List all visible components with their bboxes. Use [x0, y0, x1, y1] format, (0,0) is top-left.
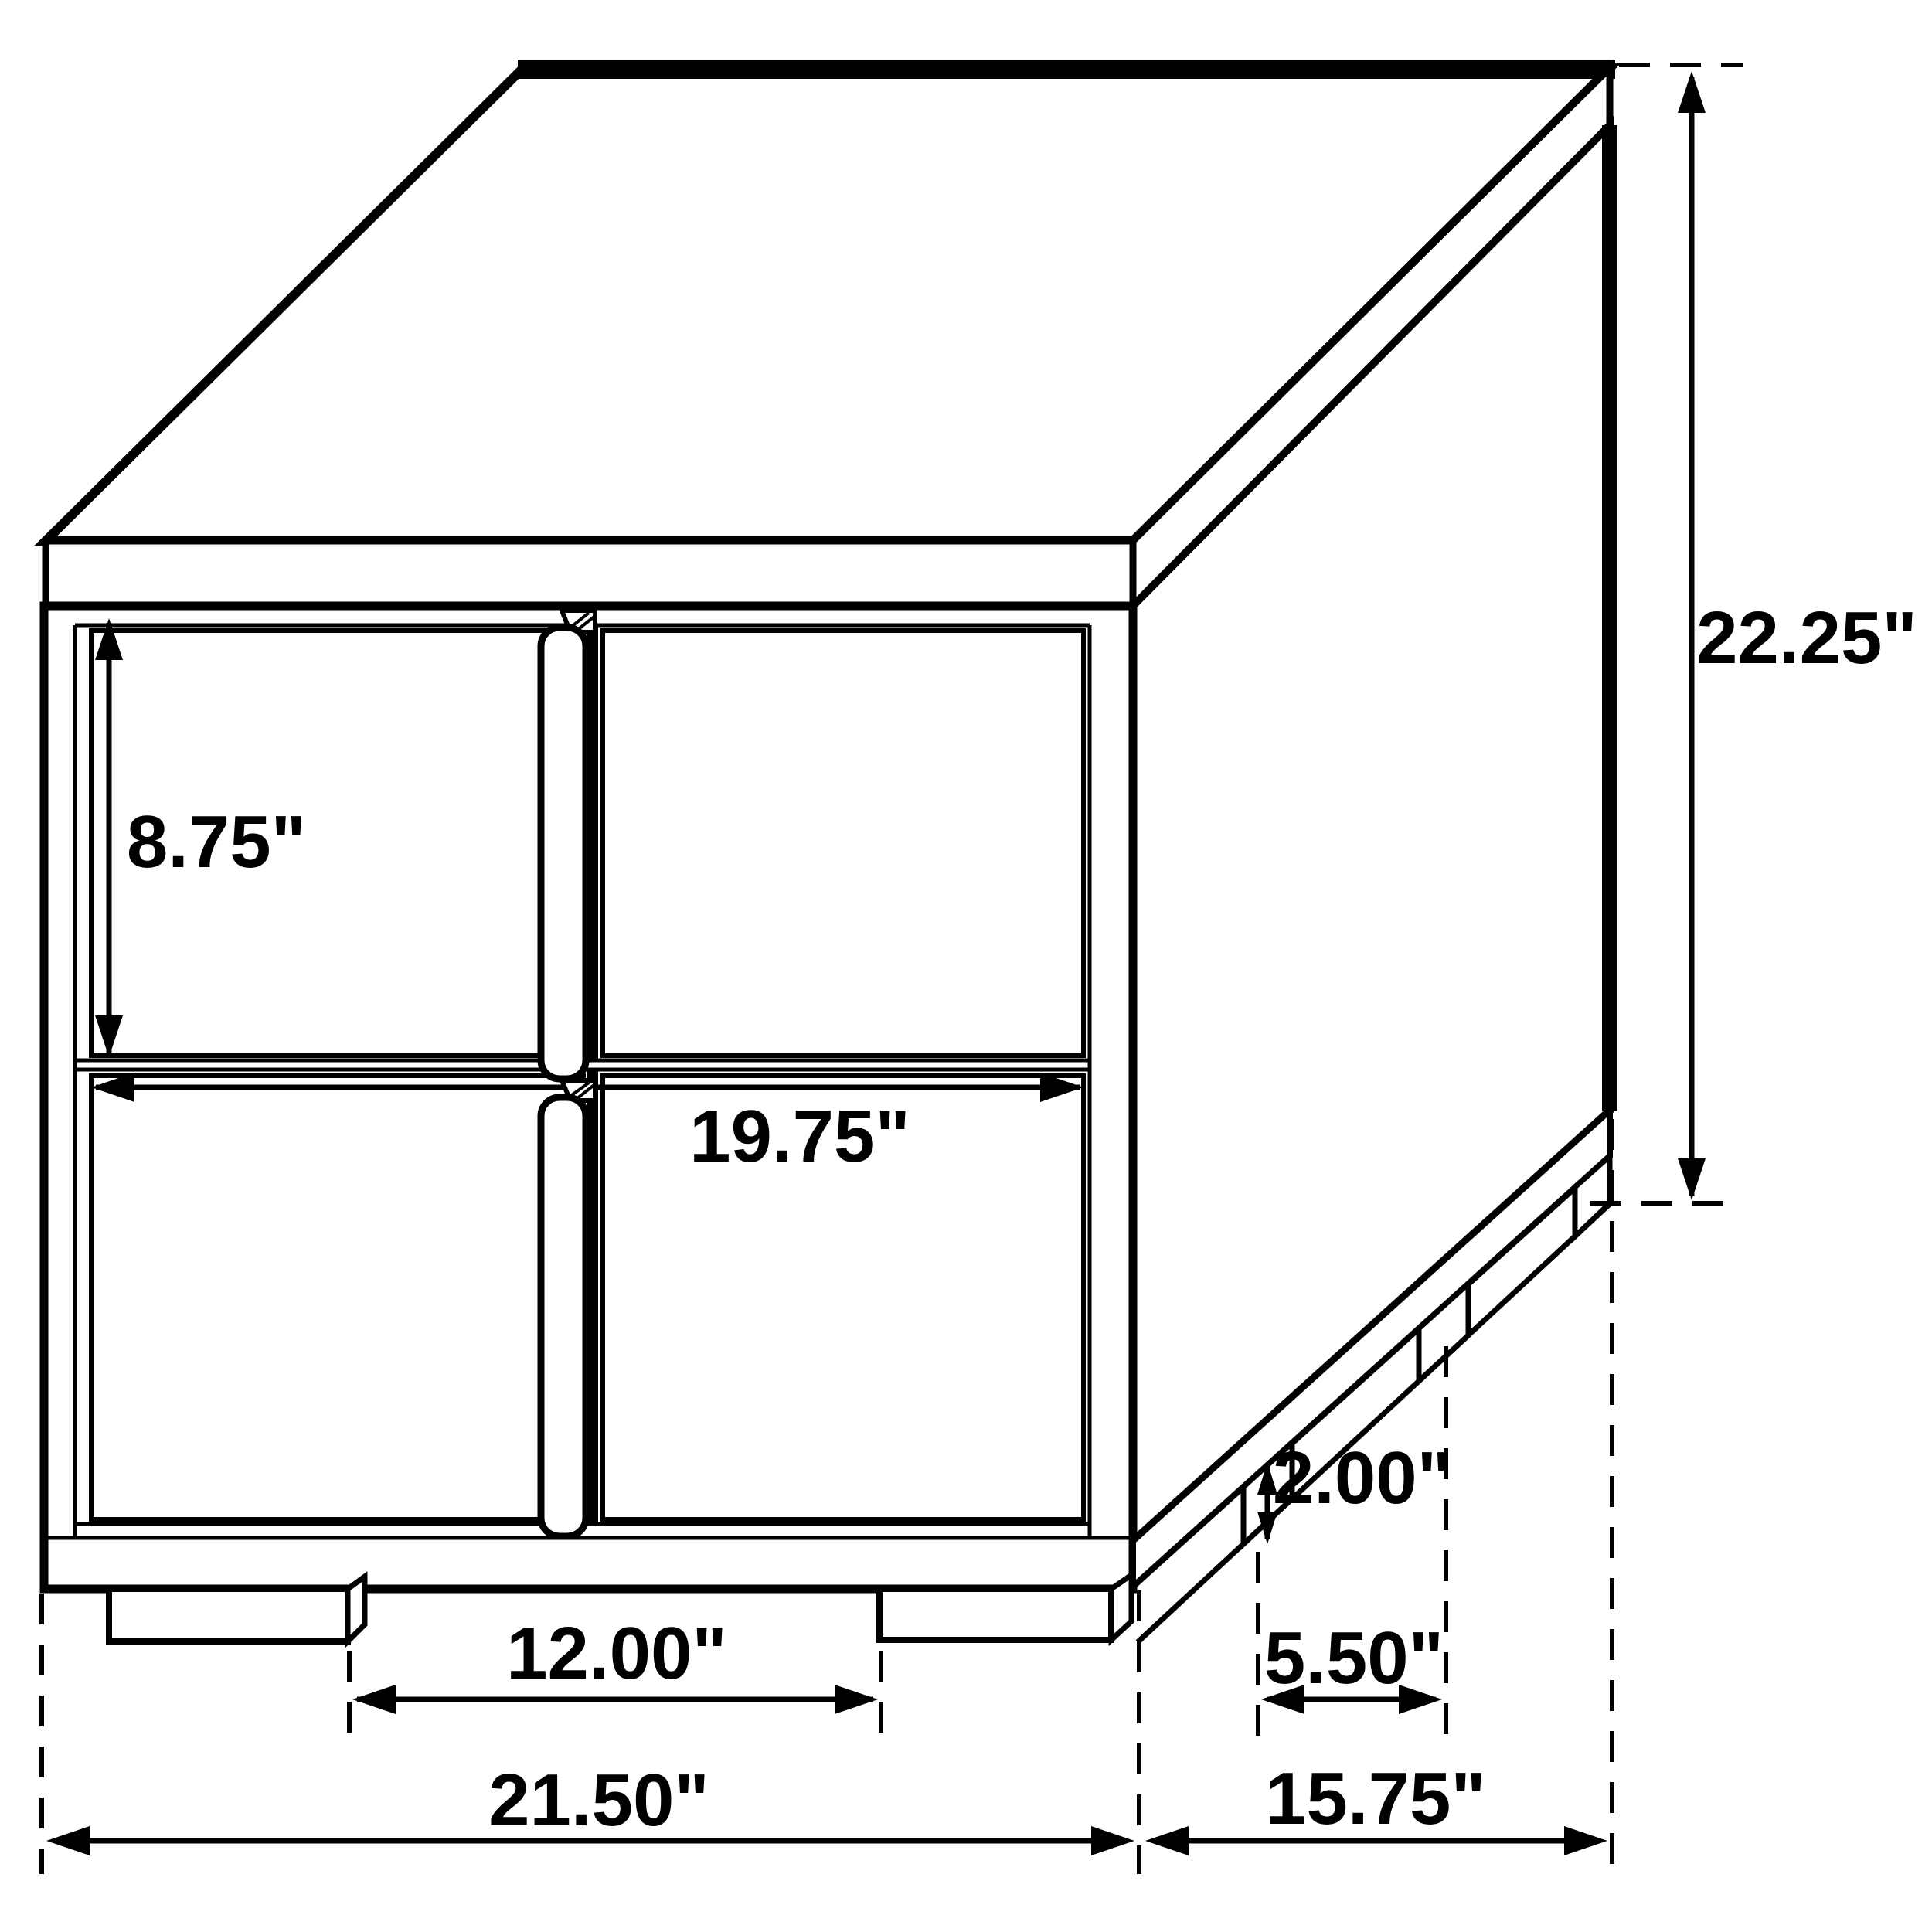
- arrowhead-right: [1091, 1826, 1134, 1855]
- dim-label-drawer-height: 8.75": [127, 801, 306, 883]
- dim-label-drawer-width: 19.75": [689, 1095, 910, 1178]
- dim-label-leg-height: 2.00": [1273, 1437, 1452, 1519]
- arrowhead-left: [352, 1685, 396, 1714]
- dim-leg-height: 2.00": [1257, 1437, 1452, 1544]
- arrowhead-right: [835, 1685, 878, 1714]
- front-leg-right-bevel: [1111, 1575, 1131, 1640]
- drawer-upper-right: [603, 631, 1083, 1056]
- dim-label-front-leg-gap: 12.00": [506, 1612, 727, 1695]
- arrowhead-right: [1564, 1826, 1607, 1855]
- drawer-lower-left: [91, 1076, 583, 1519]
- arrowhead-left: [46, 1826, 90, 1855]
- dim-label-overall-height: 22.25": [1696, 597, 1917, 679]
- top-front-band: [46, 541, 1133, 606]
- dim-label-overall-depth: 15.75": [1265, 1757, 1486, 1840]
- handle-lower: [541, 1097, 586, 1536]
- nightstand-drawing: 8.75" 19.75" 22.25" 2.00": [0, 0, 1932, 1932]
- arrowhead-left: [1145, 1826, 1189, 1855]
- dimension-diagram: 8.75" 19.75" 22.25" 2.00": [0, 0, 1932, 1932]
- arrowhead-down: [1678, 1158, 1706, 1200]
- dim-overall-height: 22.25": [1590, 65, 1917, 1203]
- arrowhead-up: [1678, 71, 1706, 113]
- dim-label-side-leg-gap: 5.50": [1264, 1617, 1444, 1699]
- front-leg-left: [109, 1589, 348, 1641]
- front-leg-right: [879, 1589, 1111, 1640]
- front-leg-left-bevel: [348, 1577, 365, 1641]
- dim-front-leg-gap: 12.00": [349, 1612, 881, 1737]
- handle-upper: [541, 628, 586, 1079]
- dim-label-overall-width: 21.50": [488, 1759, 709, 1842]
